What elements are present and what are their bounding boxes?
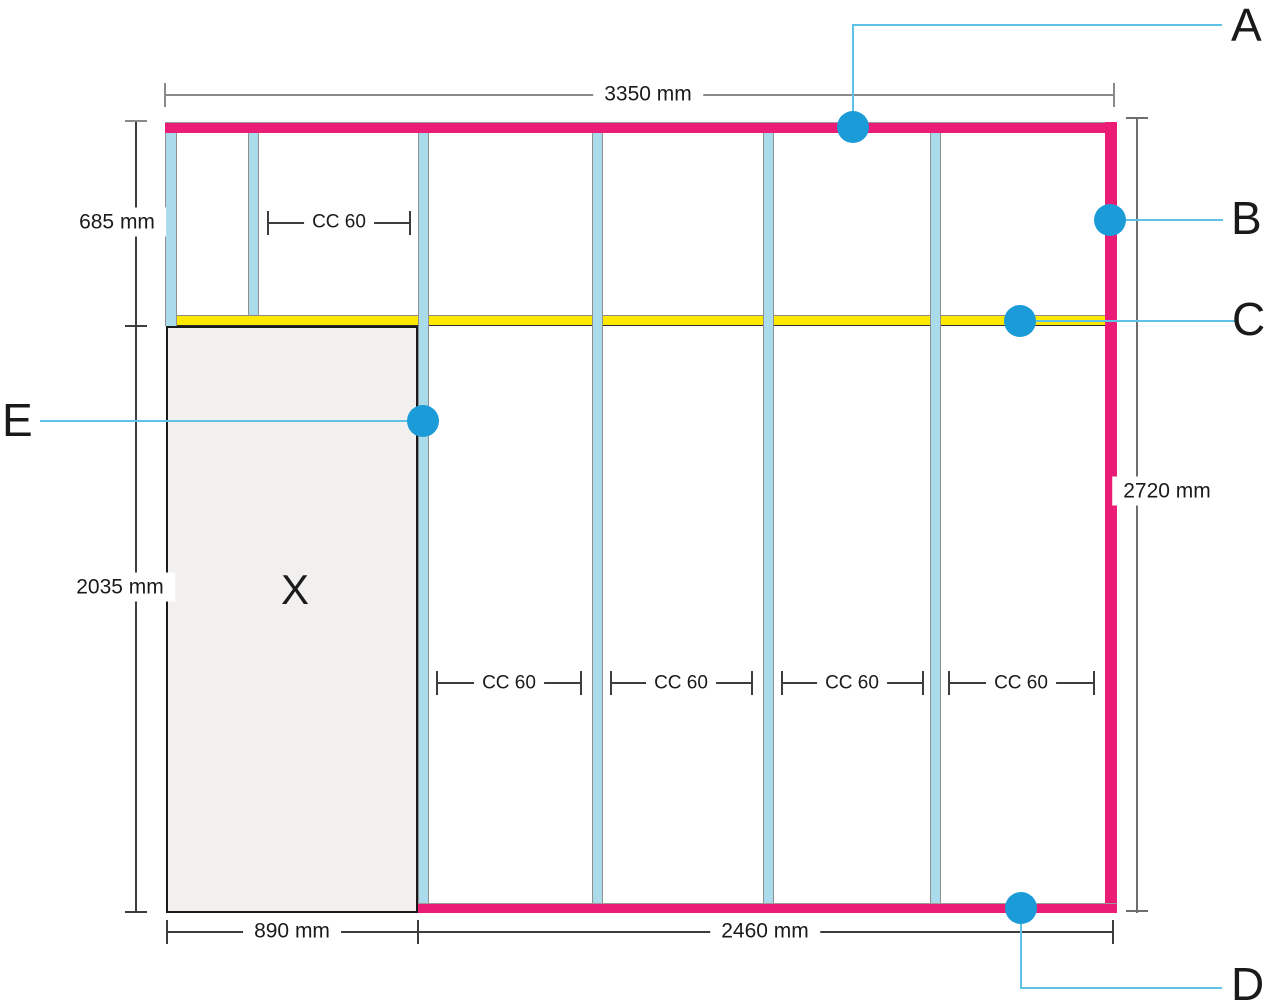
cc-4-label: CC 60 [986, 671, 1056, 696]
stud-left-edge [165, 133, 177, 326]
dim-upper-left-tick-top [125, 120, 147, 122]
cc-3-label: CC 60 [817, 671, 887, 696]
dim-right-line [1136, 118, 1138, 913]
dim-lower-left-line [135, 326, 137, 913]
cc-top-tick-left [267, 211, 269, 235]
dim-right-tick-top [1126, 117, 1148, 119]
callout-c-label: C [1232, 296, 1265, 342]
stud-full-2 [592, 133, 603, 903]
cc-1-label: CC 60 [474, 671, 544, 696]
callout-a-label: A [1231, 2, 1262, 48]
callout-a-line [853, 25, 1222, 127]
cc-4-tick-right [1093, 671, 1095, 695]
cc-3-tick-right [922, 671, 924, 695]
cc-top-label: CC 60 [304, 210, 374, 235]
cc-2-tick-left [610, 671, 612, 695]
dim-bottom-tick-left [166, 920, 168, 944]
dim-bottom-left-label: 890 mm [243, 917, 341, 946]
dim-right-label: 2720 mm [1112, 477, 1222, 506]
dim-upper-left-label: 685 mm [68, 208, 166, 237]
stud-full-1 [418, 133, 429, 903]
stud-full-4 [930, 133, 941, 903]
cc-1-tick-left [436, 671, 438, 695]
opening-region [166, 326, 418, 913]
horizontal-rail [177, 315, 1105, 326]
stud-full-3 [763, 133, 774, 903]
dim-lower-left-tick-bottom [125, 911, 147, 913]
callout-e-label: E [2, 397, 33, 443]
dim-top-tick-right [1113, 83, 1115, 107]
stud-short [248, 133, 259, 315]
callout-d-line [1021, 908, 1222, 988]
dim-top-tick-left [164, 83, 166, 107]
callout-d-label: D [1231, 961, 1264, 1007]
bottom-plate [418, 903, 1117, 913]
opening-region-label: X [281, 569, 309, 611]
cc-2-tick-right [751, 671, 753, 695]
dim-bottom-tick-right [1112, 920, 1114, 944]
framing-diagram: X 3350 mm 685 mm 2035 mm 2720 mm 890 mm … [0, 0, 1265, 1007]
cc-1-tick-right [580, 671, 582, 695]
top-plate [165, 122, 1117, 133]
dim-top-label: 3350 mm [593, 80, 703, 109]
cc-top-tick-right [409, 211, 411, 235]
dim-right-tick-bottom [1126, 910, 1148, 912]
cc-3-tick-left [781, 671, 783, 695]
dim-bottom-tick-mid [417, 920, 419, 944]
cc-4-tick-left [948, 671, 950, 695]
right-plate [1105, 122, 1117, 913]
cc-2-label: CC 60 [646, 671, 716, 696]
dim-lower-left-label: 2035 mm [65, 573, 175, 602]
callout-b-label: B [1231, 195, 1262, 241]
dim-bottom-right-label: 2460 mm [710, 917, 820, 946]
